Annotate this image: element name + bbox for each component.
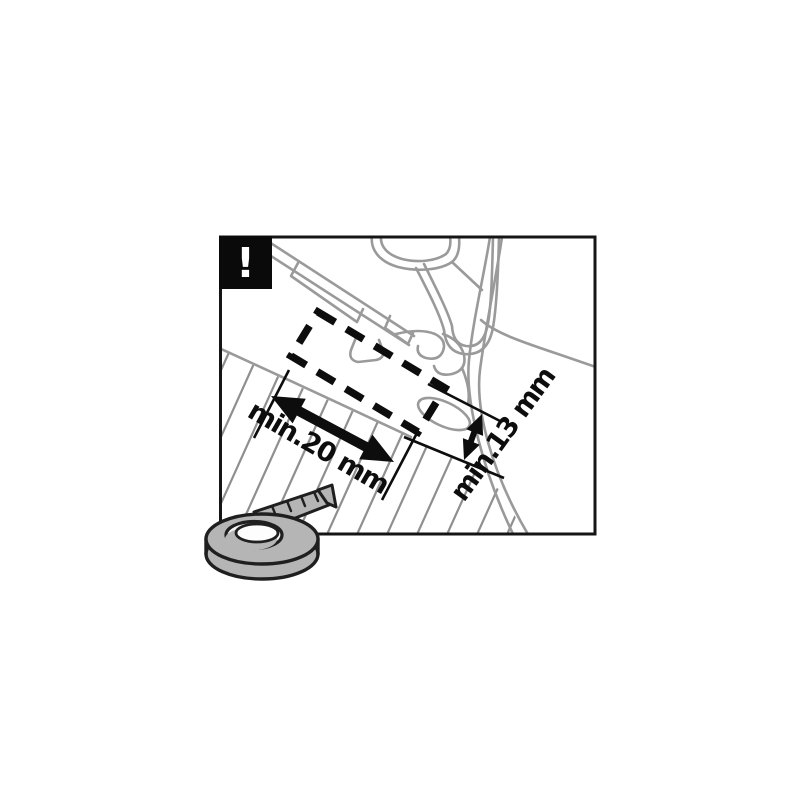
warning-exclamation-icon: ! — [236, 239, 255, 287]
instruction-figure: min.20 mm min.13 mm ! — [0, 0, 800, 800]
instruction-diagram: min.20 mm min.13 mm ! — [0, 0, 800, 800]
tape-roll — [206, 514, 318, 579]
warning-badge: ! — [219, 236, 272, 289]
